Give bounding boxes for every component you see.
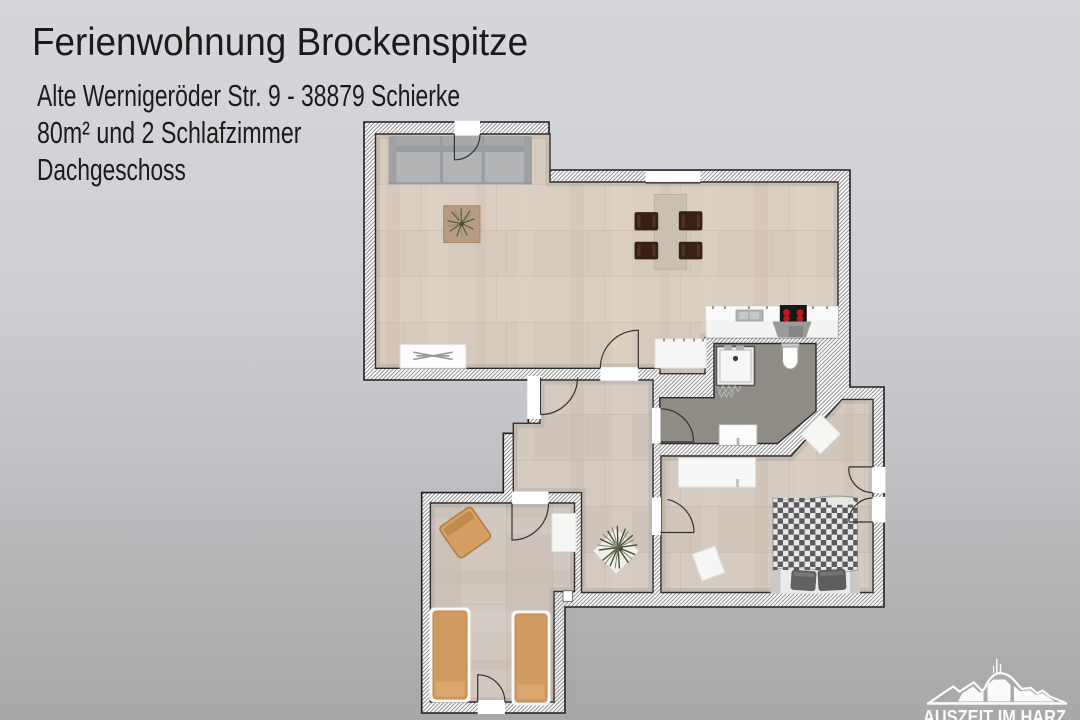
svg-text:AUSZEIT IM HARZ: AUSZEIT IM HARZ <box>923 707 1066 720</box>
